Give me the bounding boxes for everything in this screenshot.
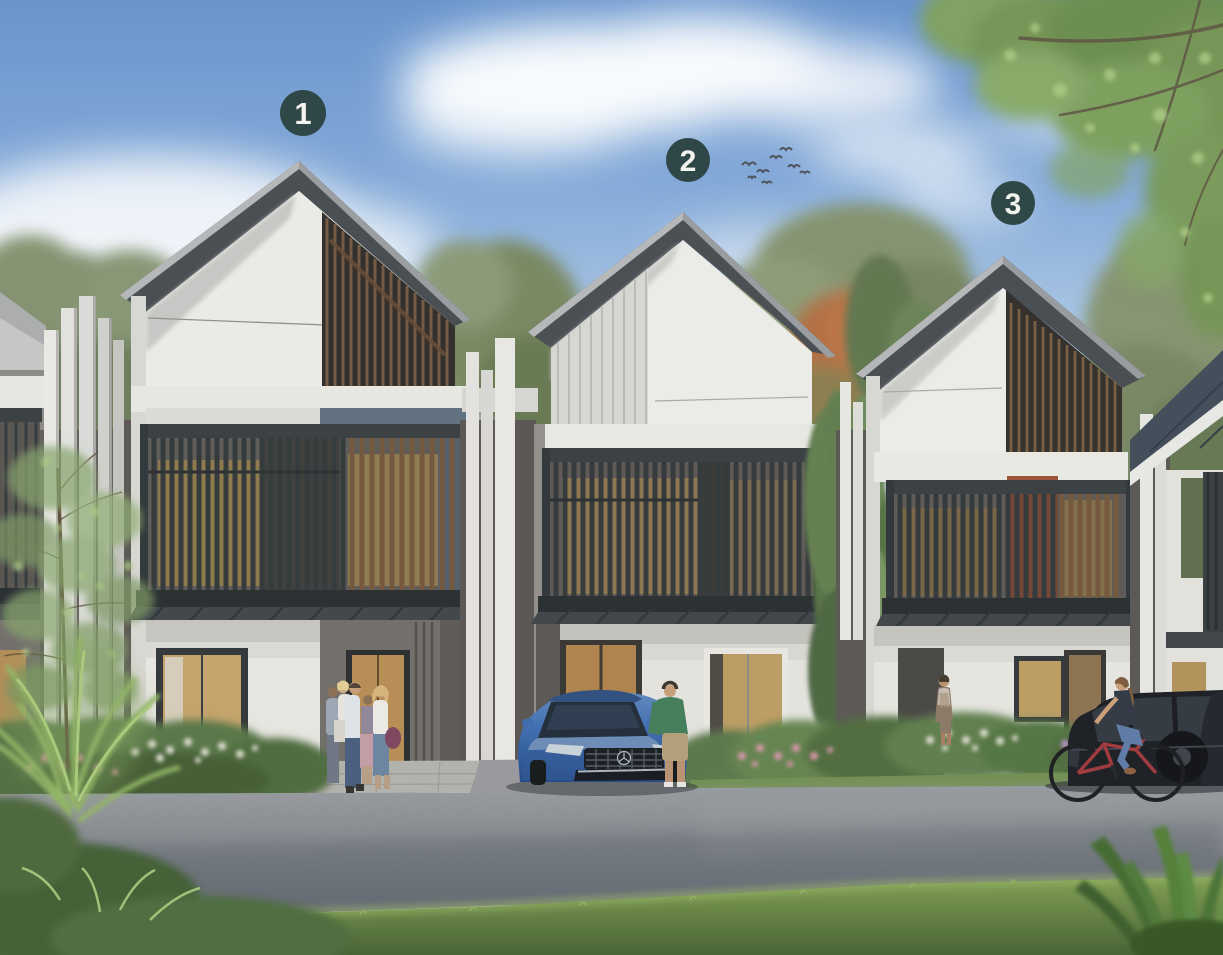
svg-text:2: 2 bbox=[680, 145, 697, 178]
svg-text:3: 3 bbox=[1005, 188, 1022, 221]
svg-text:1: 1 bbox=[294, 96, 311, 131]
